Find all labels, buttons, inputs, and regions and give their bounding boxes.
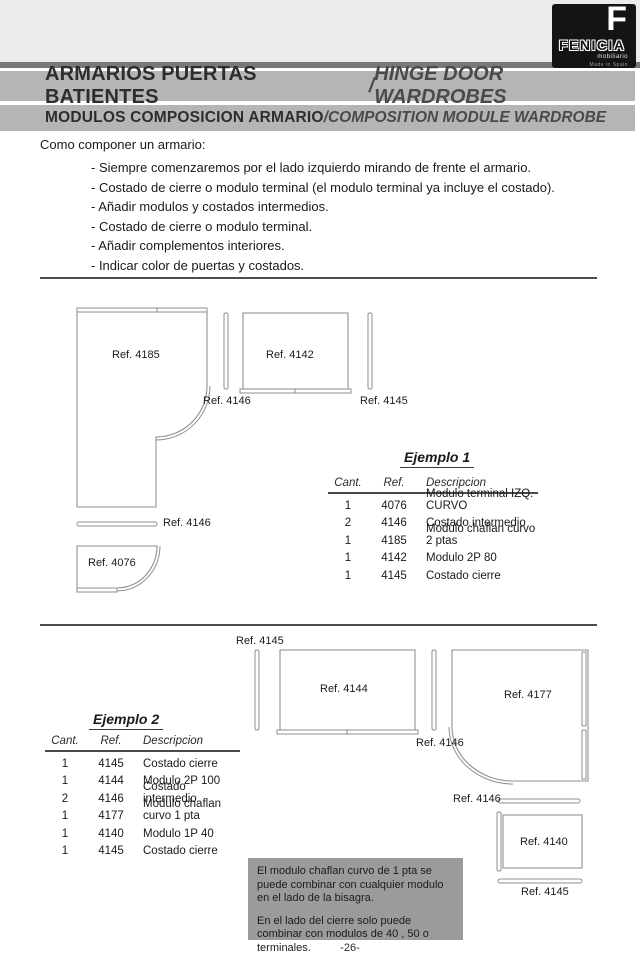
ref-label-4185: Ref. 4185: [112, 349, 160, 361]
table-row: 1 4145 Costado cierre: [45, 752, 240, 770]
brand-logo: F FENICIA mobiliario Made in Spain: [552, 4, 636, 68]
logo-f-icon: F: [606, 0, 627, 39]
ref-label-4145-bottom: Ref. 4145: [521, 886, 569, 898]
example2-diagram: [230, 630, 610, 895]
ref-label-4140: Ref. 4140: [520, 836, 568, 848]
cell-desc: Modulo 1P 40: [137, 828, 240, 840]
ref-label-4177: Ref. 4177: [504, 689, 552, 701]
cell-cant: 1: [45, 828, 85, 840]
table-header-row: Cant. Ref. Descripcion: [45, 735, 240, 752]
ref-label-4142: Ref. 4142: [266, 349, 314, 361]
cell-cant: 1: [328, 570, 368, 582]
ref-label-4145-top: Ref. 4145: [236, 635, 284, 647]
page-number: -26-: [320, 942, 380, 954]
section-divider-1: [40, 277, 597, 279]
logo-brand-name: FENICIA: [559, 37, 626, 53]
cell-ref: 4144: [85, 775, 137, 787]
costado-4146-horizontal-strip: [77, 522, 157, 526]
title-es: ARMARIOS PUERTAS BATIENTES: [45, 63, 369, 109]
example1-table: Cant. Ref. Descripcion 1 4076 Modulo ter…: [328, 477, 538, 582]
ref-label-4146-horizontal: Ref. 4146: [453, 793, 501, 805]
subtitle-en: COMPOSITION MODULE WARDROBE: [328, 109, 606, 127]
cell-cant: 1: [328, 500, 368, 512]
cell-desc: Modulo chaflan curvo 2 ptas: [420, 523, 538, 547]
intro-title: Como componer un armario:: [40, 137, 205, 152]
bullet-item: - Indicar color de puertas y costados.: [91, 256, 591, 276]
col-header-ref: Ref.: [368, 477, 420, 489]
cell-ref: 4076: [368, 500, 420, 512]
costado-4145-strip: [255, 650, 259, 730]
module-4185-shape: [77, 308, 210, 507]
bullet-item: - Costado de cierre o modulo terminal.: [91, 217, 591, 237]
ref-label-4146: Ref. 4146: [203, 395, 251, 407]
title-en: HINGE DOOR WARDROBES: [374, 63, 635, 109]
cell-cant: 1: [45, 758, 85, 770]
cell-desc: Costado cierre: [420, 570, 538, 582]
cell-desc: Costado cierre: [137, 758, 240, 770]
table-row: 1 4145 Costado cierre: [45, 840, 240, 858]
cell-cant: 1: [328, 535, 368, 547]
example2-title: Ejemplo 2: [89, 711, 163, 730]
table-row: 1 4177 Modulo chaflan curvo 1 pta: [45, 805, 240, 823]
bullet-item: - Costado de cierre o modulo terminal (e…: [91, 178, 591, 198]
cell-ref: 4146: [85, 793, 137, 805]
cell-desc: Modulo 2P 80: [420, 552, 538, 564]
cell-ref: 4145: [85, 758, 137, 770]
cell-ref: 4145: [368, 570, 420, 582]
logo-made-in: Made in Spain: [590, 62, 628, 68]
col-header-desc: Descripcion: [137, 735, 240, 747]
combination-note-box: El modulo chaflan curvo de 1 pta se pued…: [248, 858, 463, 940]
table-row: 1 4142 Modulo 2P 80: [328, 547, 538, 565]
cell-cant: 2: [45, 793, 85, 805]
example2-table: Cant. Ref. Descripcion 1 4145 Costado ci…: [45, 735, 240, 857]
cell-cant: 1: [45, 775, 85, 787]
example1-title: Ejemplo 1: [400, 449, 474, 468]
cell-ref: 4145: [85, 845, 137, 857]
cell-desc: Modulo chaflan curvo 1 pta: [137, 798, 240, 822]
module-4177-shape: [449, 650, 588, 784]
col-header-cant: Cant.: [328, 477, 368, 489]
costado-4146-strip: [224, 313, 228, 389]
cell-ref: 4142: [368, 552, 420, 564]
table-row: 1 4140 Modulo 1P 40: [45, 822, 240, 840]
subtitle-es: MODULOS COMPOSICION ARMARIO: [45, 109, 324, 127]
cell-cant: 2: [328, 517, 368, 529]
costado-4146-horizontal-strip: [498, 799, 580, 803]
cell-ref: 4146: [368, 517, 420, 529]
ref-label-4076: Ref. 4076: [88, 557, 136, 569]
section-divider-2: [40, 624, 597, 626]
ref-label-4146-horizontal: Ref. 4146: [163, 517, 211, 529]
cell-cant: 1: [45, 810, 85, 822]
ref-label-4145: Ref. 4145: [360, 395, 408, 407]
cell-cant: 1: [328, 552, 368, 564]
bullet-item: - Añadir complementos interiores.: [91, 236, 591, 256]
logo-subtitle: mobiliario: [597, 54, 628, 60]
module-4076-shape: [77, 546, 160, 592]
cell-ref: 4185: [368, 535, 420, 547]
cell-ref: 4177: [85, 810, 137, 822]
table-row: 1 4145 Costado cierre: [328, 564, 538, 582]
cell-cant: 1: [45, 845, 85, 857]
costado-4145-horizontal-strip: [498, 879, 582, 883]
intro-bullet-list: - Siempre comenzaremos por el lado izqui…: [91, 158, 591, 275]
ref-label-4146: Ref. 4146: [416, 737, 464, 749]
table-row: 1 4076 Modulo terminal IZQ. CURVO: [328, 494, 538, 512]
bullet-item: - Añadir modulos y costados intermedios.: [91, 197, 591, 217]
ref-label-4144: Ref. 4144: [320, 683, 368, 695]
title-banner-primary: ARMARIOS PUERTAS BATIENTES / HINGE DOOR …: [0, 71, 635, 101]
col-header-cant: Cant.: [45, 735, 85, 747]
col-header-ref: Ref.: [85, 735, 137, 747]
cell-desc: Costado cierre: [137, 845, 240, 857]
table-row: 1 4185 Modulo chaflan curvo 2 ptas: [328, 529, 538, 547]
cell-ref: 4140: [85, 828, 137, 840]
cell-desc: Modulo terminal IZQ. CURVO: [420, 488, 538, 512]
costado-4146-strip: [432, 650, 436, 730]
header-background-band: [0, 0, 640, 62]
bullet-item: - Siempre comenzaremos por el lado izqui…: [91, 158, 591, 178]
costado-4145-strip: [368, 313, 372, 389]
catalog-page: ARMARIOS PUERTAS BATIENTES / HINGE DOOR …: [0, 0, 640, 967]
title-banner-secondary: MODULOS COMPOSICION ARMARIO / COMPOSITIO…: [0, 105, 635, 131]
note-paragraph-1: El modulo chaflan curvo de 1 pta se pued…: [257, 865, 454, 906]
